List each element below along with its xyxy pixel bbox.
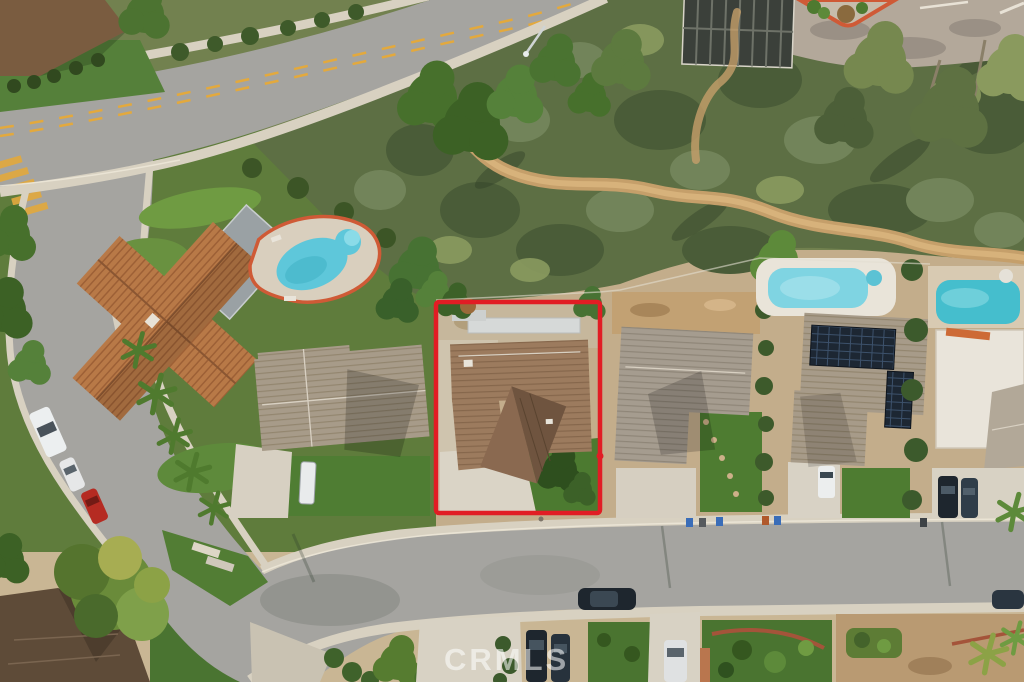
- solar-panel-array: [810, 325, 896, 369]
- bottom-dirt-yard: [836, 614, 1024, 682]
- aerial-photo-canvas: [0, 0, 1024, 682]
- aerial-photo: CRMLS: [0, 0, 1024, 682]
- mailbox: [539, 517, 544, 522]
- bottom-garden: [700, 620, 832, 682]
- crmls-watermark: CRMLS: [444, 642, 569, 678]
- white-house-lot: [928, 266, 1024, 530]
- boat-trailer: [299, 462, 316, 505]
- tree-shadow-road: [260, 574, 400, 626]
- street-parked-car-right: [992, 590, 1024, 609]
- bottom-van-white: [664, 640, 687, 682]
- patio-table: [999, 269, 1013, 283]
- subject-property: [437, 283, 606, 513]
- street-parked-sedan: [578, 588, 636, 610]
- driveway-car-white: [818, 466, 835, 498]
- driveway-cars-dark: [938, 476, 978, 518]
